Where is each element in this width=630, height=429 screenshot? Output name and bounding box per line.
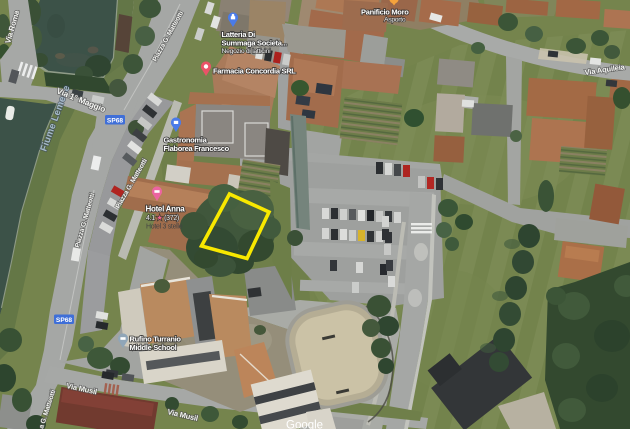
svg-text:Hotel 3 stelle: Hotel 3 stelle <box>146 224 183 231</box>
svg-text:Middle School: Middle School <box>130 343 177 352</box>
svg-text:SP68: SP68 <box>56 317 72 324</box>
svg-text:Flaborea Francesco: Flaborea Francesco <box>164 144 230 153</box>
svg-text:Panificio Moro: Panificio Moro <box>361 8 409 17</box>
svg-text:Hotel Anna: Hotel Anna <box>146 205 186 214</box>
svg-text:Farmacia Concordia SRL: Farmacia Concordia SRL <box>213 67 296 76</box>
svg-text:Summaga Societa...: Summaga Societa... <box>222 39 288 48</box>
svg-text:SP68: SP68 <box>107 117 123 124</box>
svg-text:Negozio di latticini: Negozio di latticini <box>222 48 272 55</box>
svg-text:4.1 ★ (372): 4.1 ★ (372) <box>146 214 179 222</box>
svg-text:Asporto: Asporto <box>384 17 406 24</box>
svg-text:Google: Google <box>286 420 323 429</box>
